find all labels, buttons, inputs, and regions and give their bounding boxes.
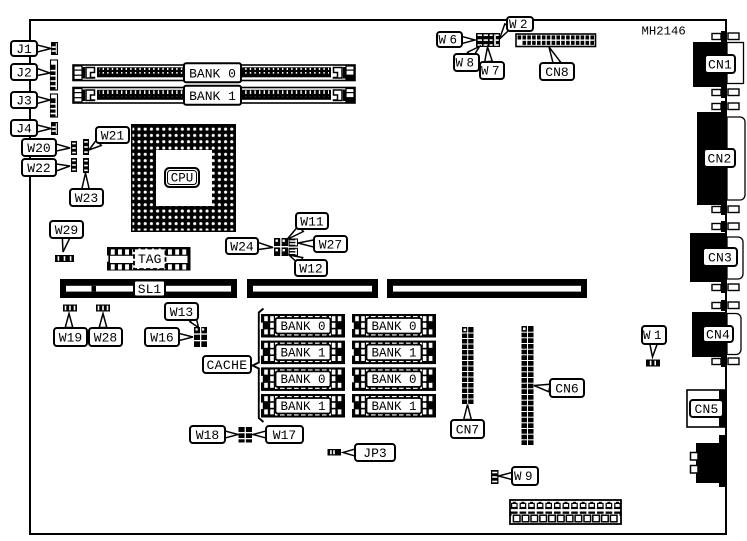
svg-text:BANK 0: BANK 0 bbox=[280, 320, 325, 334]
svg-text:BANK 1: BANK 1 bbox=[371, 346, 416, 360]
svg-text:W21: W21 bbox=[101, 129, 125, 144]
svg-text:BANK 1: BANK 1 bbox=[189, 89, 236, 104]
svg-text:W19: W19 bbox=[59, 331, 82, 346]
svg-text:J3: J3 bbox=[16, 94, 32, 109]
svg-text:W18: W18 bbox=[196, 428, 219, 443]
svg-text:W12: W12 bbox=[299, 262, 322, 277]
svg-text:BANK 1: BANK 1 bbox=[280, 400, 325, 414]
svg-text:W16: W16 bbox=[150, 331, 173, 346]
svg-text:CN6: CN6 bbox=[555, 382, 578, 397]
svg-text:W1: W1 bbox=[643, 329, 665, 343]
svg-text:CPU: CPU bbox=[171, 172, 194, 186]
svg-text:W17: W17 bbox=[273, 428, 296, 443]
svg-text:BANK 1: BANK 1 bbox=[280, 346, 325, 360]
svg-text:W8: W8 bbox=[455, 57, 477, 71]
svg-text:CACHE: CACHE bbox=[206, 358, 247, 373]
svg-text:SL1: SL1 bbox=[138, 282, 162, 297]
svg-text:J2: J2 bbox=[16, 66, 32, 81]
svg-text:W24: W24 bbox=[230, 240, 254, 255]
svg-text:W7: W7 bbox=[481, 65, 503, 79]
svg-text:CN1: CN1 bbox=[708, 58, 732, 73]
svg-text:MH2146: MH2146 bbox=[642, 25, 686, 39]
svg-text:W22: W22 bbox=[27, 161, 50, 176]
svg-text:BANK 0: BANK 0 bbox=[280, 373, 325, 387]
svg-text:W23: W23 bbox=[75, 191, 98, 206]
svg-text:BANK 1: BANK 1 bbox=[371, 400, 416, 414]
svg-text:CN4: CN4 bbox=[706, 328, 730, 343]
svg-text:CN7: CN7 bbox=[456, 423, 479, 438]
svg-text:W6: W6 bbox=[438, 34, 460, 48]
svg-text:BANK 0: BANK 0 bbox=[371, 373, 416, 387]
svg-text:W29: W29 bbox=[55, 223, 78, 238]
svg-text:JP3: JP3 bbox=[363, 446, 386, 461]
svg-text:BANK 0: BANK 0 bbox=[189, 66, 236, 81]
svg-text:BANK 0: BANK 0 bbox=[371, 320, 416, 334]
svg-text:CN5: CN5 bbox=[694, 402, 718, 417]
svg-text:W2: W2 bbox=[509, 18, 531, 32]
svg-text:W11: W11 bbox=[300, 215, 324, 230]
svg-text:TAG: TAG bbox=[138, 252, 161, 267]
svg-text:J4: J4 bbox=[16, 122, 32, 137]
svg-text:W20: W20 bbox=[27, 141, 50, 156]
svg-text:W13: W13 bbox=[170, 305, 193, 320]
svg-text:W27: W27 bbox=[319, 238, 342, 253]
svg-text:CN3: CN3 bbox=[708, 251, 732, 266]
svg-text:CN2: CN2 bbox=[707, 152, 731, 167]
svg-text:W28: W28 bbox=[94, 331, 117, 346]
svg-text:J1: J1 bbox=[16, 42, 32, 57]
svg-text:W9: W9 bbox=[514, 470, 536, 484]
svg-text:CN8: CN8 bbox=[545, 65, 568, 80]
